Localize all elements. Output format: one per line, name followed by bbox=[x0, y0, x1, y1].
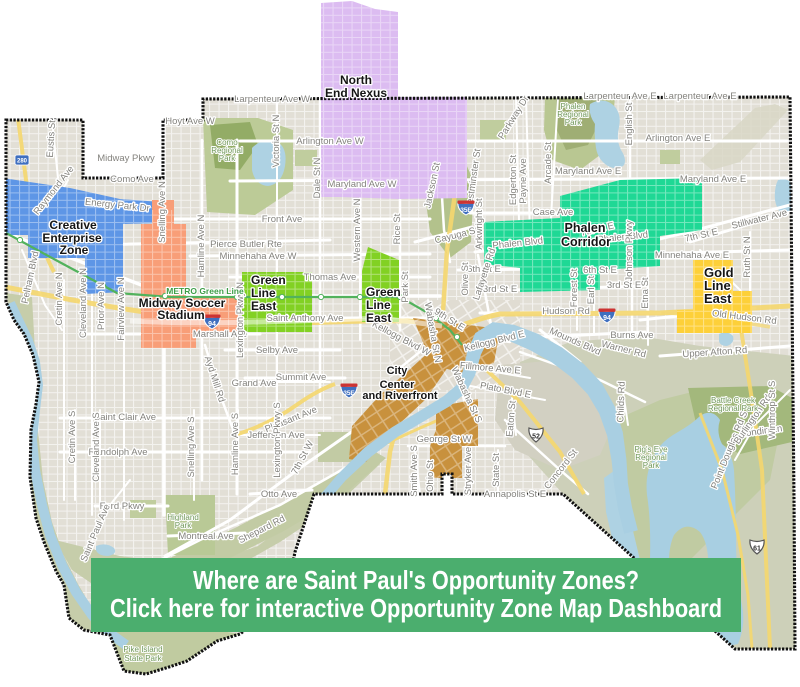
svg-text:6th St E: 6th St E bbox=[583, 265, 617, 276]
svg-text:Line: Line bbox=[366, 298, 391, 312]
svg-text:Arkwright St: Arkwright St bbox=[474, 198, 485, 250]
svg-text:North: North bbox=[340, 73, 372, 87]
svg-text:Front Ave: Front Ave bbox=[262, 214, 303, 225]
svg-text:Minnehaha Ave E: Minnehaha Ave E bbox=[655, 250, 729, 261]
svg-text:Hoyt Ave W: Hoyt Ave W bbox=[165, 116, 214, 127]
svg-text:Olive St: Olive St bbox=[460, 262, 471, 296]
svg-text:Montreal Ave: Montreal Ave bbox=[178, 531, 233, 542]
svg-text:Etna St: Etna St bbox=[640, 277, 651, 309]
svg-text:Dale St N: Dale St N bbox=[312, 158, 323, 199]
svg-text:Larpenteur Ave E: Larpenteur Ave E bbox=[583, 91, 656, 102]
svg-text:Line: Line bbox=[251, 286, 276, 300]
svg-text:East: East bbox=[704, 291, 732, 306]
svg-text:Larpenteur Ave E: Larpenteur Ave E bbox=[663, 91, 736, 102]
svg-text:Zone: Zone bbox=[60, 243, 89, 257]
svg-text:280: 280 bbox=[17, 159, 28, 165]
svg-text:Maryland Ave W: Maryland Ave W bbox=[328, 179, 397, 190]
svg-text:METRO Green Line: METRO Green Line bbox=[166, 286, 244, 296]
svg-text:52: 52 bbox=[532, 434, 540, 441]
svg-text:Hamline Ave S: Hamline Ave S bbox=[230, 413, 241, 475]
svg-text:Payne Ave: Payne Ave bbox=[518, 158, 529, 203]
svg-text:East: East bbox=[251, 299, 276, 313]
svg-text:State St: State St bbox=[491, 453, 502, 487]
svg-text:Johnson Pkwy: Johnson Pkwy bbox=[624, 220, 635, 282]
svg-text:Creative: Creative bbox=[49, 218, 97, 232]
svg-text:and Riverfront: and Riverfront bbox=[362, 390, 438, 402]
svg-text:Western Ave N: Western Ave N bbox=[352, 198, 363, 261]
svg-text:Lexington Pkwy S: Lexington Pkwy S bbox=[272, 402, 283, 478]
svg-text:Stadium: Stadium bbox=[157, 308, 204, 322]
svg-text:Arcade St: Arcade St bbox=[543, 142, 554, 184]
svg-text:Larpenteur Ave W: Larpenteur Ave W bbox=[234, 94, 310, 105]
svg-text:Park: Park bbox=[219, 154, 236, 163]
svg-text:Arlington Ave E: Arlington Ave E bbox=[646, 133, 711, 144]
svg-text:Victoria St N: Victoria St N bbox=[271, 115, 282, 168]
svg-text:Grand Ave: Grand Ave bbox=[232, 378, 277, 389]
svg-text:Park: Park bbox=[175, 521, 192, 530]
svg-text:City: City bbox=[387, 365, 409, 377]
svg-text:Maryland Ave E: Maryland Ave E bbox=[555, 166, 621, 177]
svg-text:Midway Pkwy: Midway Pkwy bbox=[97, 153, 155, 164]
svg-text:Cretin Ave N: Cretin Ave N bbox=[54, 272, 65, 325]
svg-text:State Park: State Park bbox=[124, 654, 162, 663]
svg-text:Pierce Butler Rte: Pierce Butler Rte bbox=[210, 239, 282, 250]
svg-text:Cleveland Ave S: Cleveland Ave S bbox=[91, 412, 102, 482]
svg-text:Green: Green bbox=[251, 273, 286, 287]
svg-text:Annapolis St E: Annapolis St E bbox=[484, 489, 546, 500]
svg-text:Snelling Ave N: Snelling Ave N bbox=[157, 181, 168, 243]
svg-text:Cleveland Ave N: Cleveland Ave N bbox=[78, 268, 89, 338]
svg-text:Summit Ave: Summit Ave bbox=[276, 372, 327, 383]
svg-text:Saint Anthony Ave: Saint Anthony Ave bbox=[267, 313, 344, 324]
svg-text:Prior Ave N: Prior Ave N bbox=[96, 282, 107, 330]
svg-text:Smith Ave S: Smith Ave S bbox=[409, 445, 420, 497]
svg-text:Green: Green bbox=[366, 285, 401, 299]
svg-text:Earl St: Earl St bbox=[586, 275, 597, 304]
svg-text:Como Ave: Como Ave bbox=[110, 174, 154, 185]
svg-text:Ruth St N: Ruth St N bbox=[742, 236, 753, 277]
svg-text:Corridor: Corridor bbox=[561, 235, 611, 249]
svg-text:Hamline Ave N: Hamline Ave N bbox=[196, 215, 207, 278]
svg-text:Maryland Ave E: Maryland Ave E bbox=[680, 174, 746, 185]
svg-text:George St W: George St W bbox=[417, 434, 472, 445]
svg-text:94: 94 bbox=[208, 321, 216, 328]
svg-text:35E: 35E bbox=[343, 390, 355, 397]
svg-text:94: 94 bbox=[603, 315, 611, 322]
svg-text:Hudson Rd: Hudson Rd bbox=[542, 306, 590, 317]
svg-text:Rice St: Rice St bbox=[392, 213, 403, 244]
svg-text:Arlington Ave W: Arlington Ave W bbox=[296, 136, 363, 147]
svg-text:Winthrop St S: Winthrop St S bbox=[767, 381, 778, 440]
svg-text:Fairview Ave N: Fairview Ave N bbox=[116, 277, 127, 340]
svg-text:Burns Ave: Burns Ave bbox=[610, 330, 653, 341]
svg-text:End Nexus: End Nexus bbox=[325, 86, 387, 100]
svg-text:Thomas Ave: Thomas Ave bbox=[304, 272, 357, 283]
svg-text:Phalen: Phalen bbox=[565, 221, 606, 235]
svg-text:Park: Park bbox=[643, 461, 660, 470]
svg-text:Regional Park: Regional Park bbox=[708, 404, 759, 413]
svg-text:Snelling Ave S: Snelling Ave S bbox=[186, 416, 197, 477]
svg-text:Pike Island: Pike Island bbox=[123, 645, 162, 654]
svg-text:East: East bbox=[366, 311, 391, 325]
svg-text:English St: English St bbox=[624, 102, 635, 145]
svg-text:35E: 35E bbox=[460, 207, 472, 214]
svg-text:Ohio St: Ohio St bbox=[425, 460, 436, 492]
svg-text:Case Ave: Case Ave bbox=[533, 207, 574, 218]
svg-text:61: 61 bbox=[753, 546, 761, 553]
svg-text:Forest St: Forest St bbox=[569, 268, 580, 307]
svg-text:3rd St E: 3rd St E bbox=[483, 284, 517, 295]
svg-text:Minnehaha Ave W: Minnehaha Ave W bbox=[220, 251, 297, 262]
svg-text:Cretin Ave S: Cretin Ave S bbox=[67, 411, 78, 464]
svg-text:Park: Park bbox=[565, 118, 582, 127]
svg-text:Saint Clair Ave: Saint Clair Ave bbox=[94, 412, 156, 423]
svg-text:Stryker Ave: Stryker Ave bbox=[463, 447, 474, 495]
svg-text:Otto Ave: Otto Ave bbox=[261, 489, 297, 500]
svg-text:Park St: Park St bbox=[400, 271, 411, 303]
svg-text:Childs Rd: Childs Rd bbox=[615, 381, 627, 423]
svg-text:Click here for interactive Opp: Click here for interactive Opportunity Z… bbox=[110, 593, 722, 623]
svg-text:Where are Saint Paul's Opportu: Where are Saint Paul's Opportunity Zones… bbox=[193, 565, 639, 595]
svg-text:Selby Ave: Selby Ave bbox=[256, 345, 298, 356]
